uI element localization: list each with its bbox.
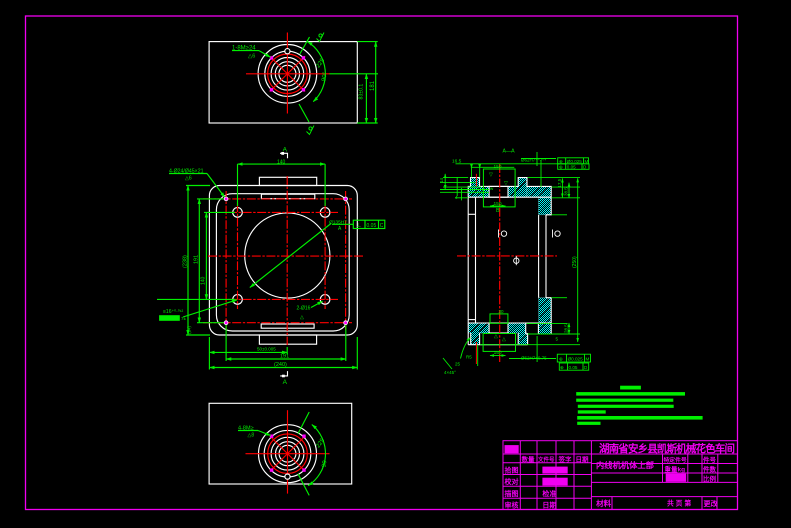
svg-text:140: 140 <box>277 159 286 165</box>
svg-text:特定件号: 特定件号 <box>664 456 687 464</box>
svg-text:Ø62H7×0.75: Ø62H7×0.75 <box>521 355 547 360</box>
svg-text:90°: 90° <box>321 71 328 81</box>
svg-text:83±0.1: 83±0.1 <box>359 84 365 100</box>
svg-text:1-8M≥24: 1-8M≥24 <box>232 46 256 52</box>
svg-text:Ø62H7⁺⁰·⁰⁷⁴: Ø62H7⁺⁰·⁰⁷⁴ <box>521 158 546 163</box>
svg-text:内线机机体上部: 内线机机体上部 <box>596 460 654 470</box>
svg-text:共 页 第: 共 页 第 <box>667 499 691 508</box>
svg-text:4×45°: 4×45° <box>444 370 456 375</box>
svg-text:△6: △6 <box>248 54 255 60</box>
svg-text:更改: 更改 <box>704 499 719 508</box>
svg-text:4-8M≥: 4-8M≥ <box>238 426 254 432</box>
svg-text:17.5: 17.5 <box>557 178 562 187</box>
svg-text:▽: ▽ <box>504 181 508 187</box>
svg-text:(250): (250) <box>572 256 578 268</box>
svg-text:△8: △8 <box>248 433 255 439</box>
svg-text:191: 191 <box>194 255 200 264</box>
svg-text:Ø0.025: Ø0.025 <box>568 357 584 362</box>
svg-text:(238): (238) <box>182 255 188 268</box>
svg-text:0.05: 0.05 <box>367 223 377 229</box>
svg-text:B: B <box>496 208 500 214</box>
svg-text:4-Ø24/Ø45×21: 4-Ø24/Ø45×21 <box>169 169 204 175</box>
svg-text:重量kg: 重量kg <box>665 465 686 474</box>
svg-text:日期: 日期 <box>542 501 556 510</box>
svg-text:R5: R5 <box>466 355 472 360</box>
svg-text:⊕: ⊕ <box>559 357 563 362</box>
svg-text:Ø0.025: Ø0.025 <box>567 159 583 164</box>
svg-text:签字: 签字 <box>558 454 573 463</box>
svg-text:△: △ <box>494 334 498 340</box>
svg-text:拾图: 拾图 <box>505 466 519 475</box>
svg-text:M: M <box>586 357 590 362</box>
svg-text:⊥: ⊥ <box>356 222 361 229</box>
svg-text:150: 150 <box>494 201 502 207</box>
svg-text:0.05: 0.05 <box>569 365 578 370</box>
svg-text:⊕: ⊕ <box>559 165 563 170</box>
svg-text:0.05: 0.05 <box>567 165 576 170</box>
svg-text:191: 191 <box>280 354 289 360</box>
svg-text:▽: ▽ <box>489 172 493 178</box>
svg-text:150: 150 <box>494 164 502 170</box>
svg-text:A—A: A—A <box>503 148 516 154</box>
svg-text:Ø135H7: Ø135H7 <box>329 219 347 225</box>
svg-text:16.5: 16.5 <box>452 158 462 164</box>
svg-text:140: 140 <box>201 276 207 285</box>
svg-text:校对: 校对 <box>505 477 519 486</box>
svg-text:14: 14 <box>439 177 444 183</box>
svg-text:材料: 材料 <box>596 498 611 508</box>
svg-text:描图: 描图 <box>505 489 519 498</box>
svg-text:⊕: ⊕ <box>559 159 563 164</box>
svg-text:38.5: 38.5 <box>564 187 569 196</box>
svg-text:C: C <box>380 223 384 229</box>
svg-text:△: △ <box>300 315 304 321</box>
svg-text:28.5: 28.5 <box>563 324 568 333</box>
svg-text:湖南省安乡县凯斯机械花色车间: 湖南省安乡县凯斯机械花色车间 <box>599 442 735 455</box>
svg-text:30: 30 <box>499 309 505 314</box>
svg-text:≡16⁺⁰·⁰¹²: ≡16⁺⁰·⁰¹² <box>163 309 183 315</box>
svg-text:2-Ø16: 2-Ø16 <box>297 306 311 312</box>
svg-text:⊕: ⊕ <box>560 365 564 370</box>
svg-text:A: A <box>283 379 288 386</box>
svg-text:比例: 比例 <box>703 474 717 483</box>
svg-text:(24): (24) <box>187 325 192 334</box>
svg-text:25: 25 <box>455 362 461 367</box>
svg-text:件数: 件数 <box>703 465 717 474</box>
svg-text:7±: 7± <box>181 316 187 321</box>
svg-text:50±0.005: 50±0.005 <box>257 347 276 352</box>
svg-text:△: △ <box>502 337 506 343</box>
svg-text:审核: 审核 <box>505 501 519 510</box>
svg-text:181: 181 <box>370 80 376 91</box>
svg-text:(240): (240) <box>274 362 287 368</box>
svg-text:日期: 日期 <box>576 454 590 463</box>
svg-text:150: 150 <box>494 350 502 356</box>
svg-text:检准: 检准 <box>542 489 556 498</box>
svg-text:文件号: 文件号 <box>538 455 555 463</box>
svg-text:M: M <box>585 159 589 164</box>
svg-text:件号: 件号 <box>703 455 717 464</box>
svg-text:△6: △6 <box>185 176 192 182</box>
svg-text:数量: 数量 <box>522 454 536 463</box>
